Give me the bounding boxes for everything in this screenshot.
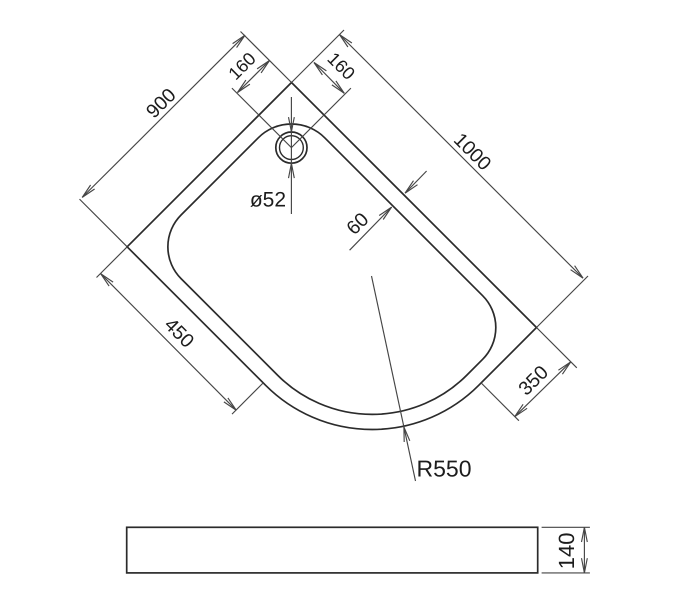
svg-text:ø52: ø52 — [250, 189, 286, 212]
svg-text:140: 140 — [554, 533, 579, 570]
svg-text:R550: R550 — [417, 456, 472, 482]
